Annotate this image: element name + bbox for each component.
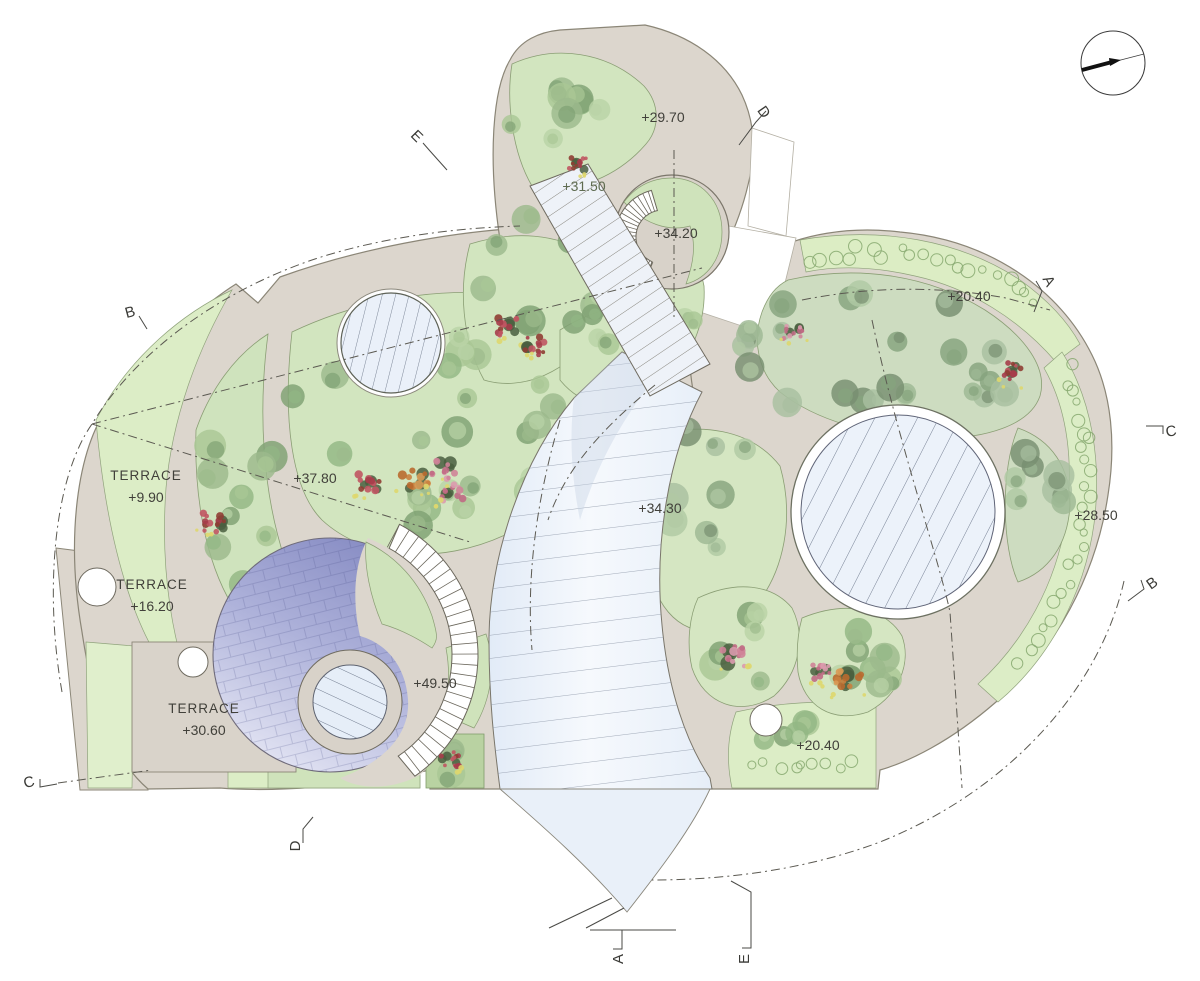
tree-canopy [525, 310, 542, 327]
tick-e-bottom [731, 881, 751, 948]
flower-dot [514, 316, 519, 321]
tree-canopy [742, 362, 758, 378]
tree-canopy [707, 438, 718, 449]
tree-canopy [876, 644, 893, 661]
flower-dot-yellow [805, 339, 808, 342]
flower-dot [497, 333, 502, 338]
flower-dot [442, 469, 447, 474]
level-3150: +31.50 [562, 178, 605, 194]
tree-canopy [774, 298, 789, 313]
tree-canopy [744, 322, 756, 334]
section-a-right: A [1039, 273, 1059, 290]
flower-dot [827, 664, 831, 668]
tree-canopy [853, 644, 866, 657]
flower-dot [222, 519, 226, 523]
tree-canopy [529, 414, 545, 430]
terrace-3-level: +30.60 [182, 722, 225, 738]
flower-dot-yellow [362, 496, 366, 500]
tree-canopy [775, 324, 785, 334]
flower-dot [730, 659, 735, 664]
tree-canopy [523, 208, 539, 224]
section-c-left: C [22, 773, 37, 792]
flower-dot [855, 673, 863, 681]
flower-dot [216, 512, 224, 520]
flower-dot [213, 529, 219, 535]
nw-skylight [341, 293, 441, 393]
opening-se [750, 704, 782, 736]
flower-dot [358, 477, 363, 482]
tree-canopy [971, 369, 981, 379]
flower-dot [1018, 365, 1024, 371]
flower-dot-yellow [746, 663, 752, 669]
tree-canopy [412, 491, 426, 505]
flower-dot [414, 480, 423, 489]
flower-dot [450, 757, 454, 761]
flower-dot-yellow [779, 338, 782, 341]
tree-canopy [589, 308, 601, 320]
tree-canopy [409, 516, 425, 532]
tree-canopy [733, 342, 745, 354]
flower-dot [798, 334, 802, 338]
flower-dot [571, 162, 575, 166]
tree-canopy [997, 387, 1013, 403]
flower-dot [719, 647, 726, 654]
flower-dot [523, 347, 528, 352]
tree-canopy [505, 121, 516, 132]
flower-dot-yellow [809, 681, 814, 686]
flower-dot [452, 750, 456, 754]
flower-dot [1002, 373, 1007, 378]
tree-canopy [207, 441, 225, 459]
tree-canopy [467, 482, 479, 494]
level-2970: +29.70 [641, 109, 684, 125]
flower-dot-yellow [525, 353, 530, 358]
tree-canopy [259, 531, 270, 542]
flower-dot-yellow [455, 770, 460, 775]
flower-dot-yellow [862, 693, 866, 697]
flower-dot [791, 331, 795, 335]
flower-dot [398, 470, 407, 479]
flower-dot [439, 754, 444, 759]
flower-dot [204, 514, 209, 519]
flower-dot-yellow [434, 504, 438, 508]
terrace-2-name: TERRACE [116, 577, 188, 592]
flower-dot [364, 486, 371, 493]
tree-canopy [442, 361, 456, 375]
tree-canopy [337, 448, 351, 462]
tree-canopy [1020, 445, 1036, 461]
tick-b-left [139, 316, 147, 329]
flower-dot [569, 155, 575, 161]
tree-canopy [460, 393, 471, 404]
tree-canopy [1015, 495, 1027, 507]
flower-dot [434, 459, 438, 463]
flower-dot [541, 350, 545, 354]
flower-dot-yellow [209, 532, 214, 537]
flower-dot [1011, 362, 1015, 366]
tree-canopy [440, 772, 456, 788]
tick-d-bottom [303, 817, 313, 843]
tree-canopy [547, 134, 558, 145]
flower-dot [506, 324, 513, 331]
tick-e-top [423, 143, 447, 170]
tree-canopy [711, 542, 721, 552]
flower-dot [526, 336, 530, 340]
flower-dot [451, 481, 458, 488]
tree-canopy [453, 331, 464, 342]
flower-dot-yellow [1020, 386, 1024, 390]
tree-canopy [894, 332, 905, 343]
flower-dot [371, 486, 379, 494]
flower-dot [847, 684, 853, 690]
flower-dot [1010, 371, 1016, 377]
tree-canopy [754, 609, 765, 620]
tick-c-left [40, 779, 57, 787]
level-4950: +49.50 [413, 675, 456, 691]
tree-canopy [688, 319, 698, 329]
flower-dot [537, 350, 541, 354]
flower-dot-yellow [441, 478, 444, 481]
flower-dot [737, 650, 745, 658]
level-2040-se: +20.40 [796, 737, 839, 753]
flower-dot [1005, 360, 1011, 366]
flower-dot-yellow [427, 492, 430, 495]
tree-canopy [710, 489, 726, 505]
flower-dot [816, 666, 820, 670]
flower-dot [827, 671, 831, 675]
terrace-2-level: +16.20 [130, 598, 173, 614]
flower-dot-yellow [458, 765, 464, 771]
tree-canopy [490, 236, 502, 248]
tree-canopy [459, 505, 471, 517]
flower-dot [810, 662, 815, 667]
section-c-right: C [1165, 422, 1178, 440]
flower-dot-yellow [529, 356, 534, 361]
flower-dot-yellow [720, 668, 723, 671]
boundary-trapezoid [748, 128, 794, 236]
flower-dot [408, 484, 413, 489]
tree-canopy [874, 678, 889, 693]
section-e-bottom: E [736, 954, 753, 964]
section-a-bottom: A [610, 954, 627, 964]
flower-dot [801, 329, 805, 333]
landscape-plan: E D B A C B C D A E +29.70 +31.50 +34.20… [0, 0, 1200, 981]
flower-dot [354, 470, 362, 478]
terrace-1-name: TERRACE [110, 468, 182, 483]
flower-dot [536, 342, 542, 348]
flower-dot [821, 671, 824, 674]
tree-canopy [1052, 494, 1066, 508]
flower-dot-yellow [420, 493, 423, 496]
terrace-3-name: TERRACE [168, 701, 240, 716]
tree-canopy [969, 386, 979, 396]
section-b-right: B [1143, 574, 1161, 594]
flower-dot [409, 468, 415, 474]
flower-dot [368, 477, 375, 484]
flower-dot [446, 476, 450, 480]
flower-dot [581, 156, 586, 161]
flower-dot [422, 471, 427, 476]
cascade-fan [500, 789, 710, 912]
flower-dot-yellow [497, 338, 503, 344]
section-b-left: B [123, 303, 137, 322]
flower-dot-yellow [997, 377, 1002, 382]
tree-canopy [782, 397, 798, 413]
plan-canvas: E D B A C B C D A E +29.70 +31.50 +34.20… [0, 0, 1200, 981]
tree-canopy [558, 106, 575, 123]
flower-dot [443, 763, 447, 767]
fan-cut-line-1 [549, 898, 612, 928]
flower-dot-yellow [195, 529, 198, 532]
flower-dot [838, 668, 844, 674]
tree-canopy [1011, 475, 1023, 487]
flower-dot-yellow [831, 692, 836, 697]
tree-canopy [590, 104, 602, 116]
flower-dot [820, 663, 826, 669]
flower-dot [726, 657, 730, 661]
level-3420: +34.20 [654, 225, 697, 241]
tree-canopy [288, 390, 301, 403]
flower-dot-yellow [423, 484, 429, 490]
level-2850: +28.50 [1074, 507, 1117, 523]
tree-canopy [704, 524, 717, 537]
section-d-bottom: D [287, 840, 304, 851]
flower-dot [215, 522, 220, 527]
flower-dot [451, 470, 458, 477]
tree-canopy [571, 314, 584, 327]
tree-canopy [838, 388, 853, 403]
level-3780: +37.80 [293, 470, 336, 486]
section-d-top: D [754, 103, 774, 122]
flower-dot-yellow [787, 341, 792, 346]
tree-canopy [258, 456, 274, 472]
flower-dot-yellow [502, 336, 507, 341]
tick-a-bottom [590, 930, 676, 949]
flower-dot [456, 486, 464, 494]
fan-cut-line-2 [586, 908, 624, 928]
opening-west [78, 568, 116, 606]
flower-dot [579, 161, 582, 164]
opening-terrace [178, 647, 208, 677]
tree-canopy [449, 422, 466, 439]
sw-strip-1 [86, 642, 134, 788]
terrace-1-level: +9.90 [128, 489, 164, 505]
flower-dot-yellow [1002, 385, 1006, 389]
level-2040-ne: +20.40 [947, 288, 990, 304]
flower-dot [377, 479, 382, 484]
tree-canopy [481, 278, 495, 292]
flower-dot [798, 325, 802, 329]
tree-canopy [235, 486, 248, 499]
flower-dot [811, 675, 817, 681]
flower-dot [459, 495, 467, 503]
flower-dot [834, 680, 839, 685]
tree-canopy [754, 677, 764, 687]
flower-dot [445, 462, 450, 467]
flower-dot [536, 333, 543, 340]
flower-dot-yellow [530, 352, 534, 356]
flower-dot [430, 471, 435, 476]
tree-canopy [325, 373, 340, 388]
tick-c-right [1146, 426, 1163, 434]
flower-dot [202, 518, 208, 524]
flower-dot [739, 645, 745, 651]
north-arrow [1081, 31, 1145, 95]
flower-dot [358, 486, 364, 492]
tree-canopy [947, 349, 962, 364]
tree-canopy [198, 469, 215, 486]
flower-dot [202, 528, 206, 532]
east-skylight [801, 415, 995, 609]
tree-canopy [206, 535, 221, 550]
tick-b-right [1128, 580, 1144, 601]
flower-dot-yellow [438, 497, 444, 503]
flower-dot [842, 674, 849, 681]
flower-dot [571, 166, 576, 171]
level-3430: +34.30 [638, 500, 681, 516]
tree-canopy [739, 441, 751, 453]
dome-skylight [313, 665, 387, 739]
flower-dot-yellow [817, 680, 822, 685]
tree-canopy [1048, 472, 1065, 489]
flower-dot-yellow [354, 494, 358, 498]
flower-dot [443, 488, 449, 494]
tree-canopy [600, 337, 612, 349]
flower-dot [567, 166, 572, 171]
flower-dot [1008, 377, 1012, 381]
tree-canopy [750, 623, 761, 634]
tree-canopy [847, 629, 862, 644]
tree-canopy [988, 344, 1002, 358]
tree-canopy [902, 390, 913, 401]
flower-dot [784, 330, 787, 333]
flower-dot-yellow [394, 489, 398, 493]
tree-canopy [534, 379, 544, 389]
tree-canopy [419, 436, 429, 446]
